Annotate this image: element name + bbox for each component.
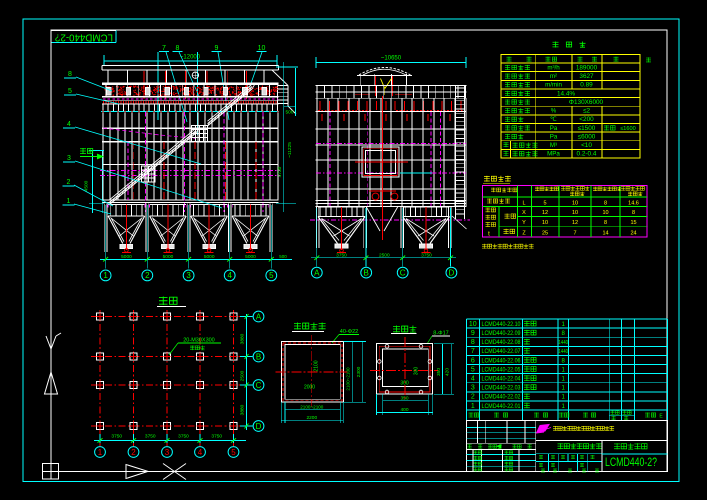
svg-text:4: 4 (67, 121, 71, 128)
svg-text:1: 1 (562, 367, 566, 373)
svg-text:3: 3 (67, 155, 71, 162)
svg-text:3: 3 (165, 448, 170, 457)
svg-text:m²: m² (550, 73, 557, 80)
svg-text:2200: 2200 (306, 415, 317, 421)
svg-text:400: 400 (400, 407, 408, 413)
svg-text:300: 300 (414, 367, 420, 376)
svg-text:7: 7 (162, 45, 166, 52)
svg-text:25: 25 (542, 230, 548, 236)
svg-text:2000: 2000 (304, 385, 315, 391)
svg-text:6: 6 (471, 357, 475, 364)
svg-text:4: 4 (198, 448, 203, 457)
svg-text:1: 1 (562, 395, 566, 401)
svg-text:3750: 3750 (145, 434, 156, 440)
svg-text:1: 1 (562, 404, 566, 410)
svg-text:4500: 4500 (84, 180, 90, 191)
svg-text:3: 3 (186, 271, 191, 280)
svg-text:10: 10 (258, 45, 266, 52)
svg-text:2100~2100: 2100~2100 (346, 367, 351, 391)
svg-text:C: C (256, 381, 262, 390)
svg-text:7: 7 (471, 348, 475, 355)
svg-text:A: A (314, 269, 320, 278)
svg-text:LCMD440-22.06: LCMD440-22.06 (482, 357, 521, 364)
svg-text:<200: <200 (579, 116, 594, 123)
svg-text:<10: <10 (581, 142, 592, 149)
svg-text:LCMD440-22.10: LCMD440-22.10 (482, 321, 521, 328)
svg-text:2: 2 (471, 394, 475, 401)
svg-text:8-Φ17: 8-Φ17 (433, 331, 448, 337)
svg-text:14.4%: 14.4% (557, 90, 575, 97)
svg-text:1: 1 (562, 386, 566, 392)
svg-text:X: X (522, 210, 526, 216)
svg-text:14.6: 14.6 (628, 200, 639, 206)
svg-text:3750: 3750 (178, 434, 189, 440)
svg-text:D: D (256, 422, 262, 431)
svg-text:15: 15 (630, 220, 636, 226)
svg-text:℃: ℃ (550, 116, 557, 123)
svg-text:Z: Z (522, 230, 526, 236)
svg-text:9: 9 (471, 330, 475, 337)
svg-text:1: 1 (67, 198, 71, 205)
svg-text:~11225: ~11225 (287, 142, 293, 158)
svg-text:B: B (256, 353, 261, 362)
svg-text:LCMD440-22.01: LCMD440-22.01 (482, 403, 521, 410)
svg-text:Y: Y (522, 220, 526, 226)
svg-text:E: E (659, 414, 663, 420)
svg-text:Pa: Pa (550, 133, 558, 140)
svg-text:4730: 4730 (277, 166, 283, 177)
svg-text:LCMD440-22.03: LCMD440-22.03 (482, 385, 521, 392)
svg-text:A: A (256, 313, 262, 322)
svg-text:5: 5 (269, 271, 274, 280)
svg-text:0.2-0.4: 0.2-0.4 (577, 151, 597, 158)
svg-text:500: 500 (279, 254, 287, 259)
svg-text:≤1500: ≤1500 (578, 125, 596, 132)
svg-text:4: 4 (227, 271, 232, 280)
svg-text:M³: M³ (550, 142, 557, 149)
svg-text:2: 2 (67, 179, 71, 186)
svg-text:20-M30X300: 20-M30X300 (183, 338, 215, 344)
svg-text:L: L (522, 200, 525, 206)
svg-text:189000: 189000 (576, 64, 598, 71)
svg-text:LCMD440-22.02: LCMD440-22.02 (482, 394, 521, 401)
svg-text:LCMD440-2?: LCMD440-2? (605, 457, 657, 469)
svg-text:LCMD440-22.08: LCMD440-22.08 (482, 339, 521, 346)
svg-text:B: B (364, 269, 369, 278)
svg-text:1: 1 (103, 271, 108, 280)
svg-text:1: 1 (471, 403, 475, 410)
svg-text:8: 8 (562, 331, 566, 337)
svg-text:12: 12 (542, 210, 548, 216)
svg-text:0.89: 0.89 (580, 82, 593, 89)
svg-text:10: 10 (602, 210, 608, 216)
svg-text:LCMD440-22.05: LCMD440-22.05 (482, 366, 521, 373)
svg-text:350: 350 (436, 368, 442, 376)
svg-text:8: 8 (471, 339, 475, 346)
svg-text:12: 12 (572, 220, 578, 226)
svg-text:350: 350 (400, 395, 408, 401)
svg-text:7: 7 (573, 230, 576, 236)
svg-text:LCMD440-22.09: LCMD440-22.09 (482, 330, 521, 337)
svg-text:8: 8 (562, 358, 566, 364)
svg-text:420: 420 (445, 368, 451, 376)
svg-text:LCMD440-2?: LCMD440-2? (55, 31, 113, 42)
svg-text:1440: 1440 (558, 349, 568, 355)
svg-text:5000: 5000 (121, 254, 132, 260)
svg-text:5: 5 (68, 88, 72, 95)
svg-text:1: 1 (98, 448, 103, 457)
svg-text:3750: 3750 (336, 252, 347, 258)
svg-text:9: 9 (215, 45, 219, 52)
svg-text:300: 300 (400, 380, 409, 386)
svg-text:5: 5 (543, 200, 546, 206)
svg-text:3750: 3750 (211, 434, 222, 440)
svg-text:40-Φ22: 40-Φ22 (340, 329, 358, 335)
svg-text:≤2: ≤2 (583, 108, 591, 115)
svg-text:2300: 2300 (356, 366, 362, 377)
svg-text:2: 2 (145, 271, 150, 280)
svg-text:LCMD440-22.04: LCMD440-22.04 (482, 376, 521, 383)
svg-text:2100: 2100 (314, 360, 320, 371)
svg-text:2500: 2500 (379, 252, 390, 258)
svg-text:8: 8 (632, 210, 635, 216)
svg-text:~10650: ~10650 (381, 56, 402, 62)
svg-text:10: 10 (572, 210, 578, 216)
svg-text:D: D (449, 269, 455, 278)
svg-text:≤1600: ≤1600 (620, 126, 636, 132)
svg-text:8: 8 (68, 71, 72, 78)
svg-text:4: 4 (471, 376, 475, 383)
svg-text:5000: 5000 (245, 254, 256, 260)
svg-text:3880: 3880 (240, 404, 246, 415)
svg-text:MPa: MPa (547, 151, 560, 158)
svg-text:1: 1 (562, 322, 566, 328)
svg-text:m³/h: m³/h (547, 64, 560, 71)
svg-text:10: 10 (542, 220, 548, 226)
svg-text:1440: 1440 (558, 340, 568, 346)
svg-text:≤6000: ≤6000 (578, 133, 596, 140)
svg-text:1: 1 (562, 377, 566, 383)
svg-text:3750: 3750 (421, 252, 432, 258)
svg-text:8: 8 (604, 200, 607, 206)
svg-text:14: 14 (602, 230, 608, 236)
svg-text:5000: 5000 (204, 254, 215, 260)
svg-text:24: 24 (630, 230, 636, 236)
svg-text:8: 8 (176, 45, 180, 52)
svg-text:%: % (551, 108, 557, 115)
svg-text:3627: 3627 (579, 73, 594, 80)
svg-text:5: 5 (231, 448, 236, 457)
svg-text:3: 3 (471, 385, 475, 392)
svg-text:Φ130X6000: Φ130X6000 (569, 99, 604, 106)
svg-text:500: 500 (285, 110, 293, 116)
svg-text:5000: 5000 (163, 254, 174, 260)
svg-text:3880: 3880 (240, 333, 246, 344)
svg-text:8: 8 (604, 220, 607, 226)
svg-text:LCMD440-22.07: LCMD440-22.07 (482, 348, 521, 355)
svg-text:10: 10 (572, 200, 578, 206)
svg-text:m/min: m/min (545, 82, 562, 89)
svg-text:C: C (400, 269, 406, 278)
svg-text:2500: 2500 (240, 370, 246, 381)
svg-text:10: 10 (469, 321, 477, 328)
svg-text:2100~2100: 2100~2100 (300, 404, 324, 409)
svg-text:5: 5 (471, 366, 475, 373)
svg-text:3750: 3750 (111, 434, 122, 440)
svg-text:Pa: Pa (550, 125, 558, 132)
svg-text:2: 2 (131, 448, 136, 457)
